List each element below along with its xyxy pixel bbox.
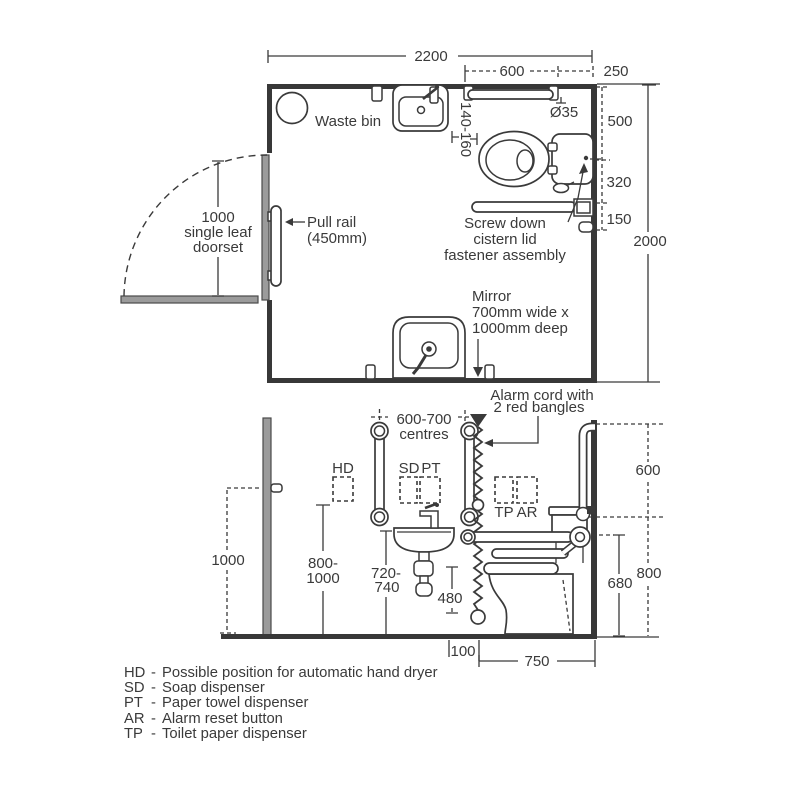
ar-label: AR — [517, 504, 538, 521]
rail-diameter-label: Ø35 — [550, 104, 578, 121]
drop-down-rail-plan — [472, 199, 593, 216]
legend-separator: - — [151, 681, 162, 696]
pull-rail-plan — [271, 206, 281, 286]
elev-dim-600-right: 600 — [589, 424, 664, 517]
plan-dim-500-label: 500 — [607, 113, 632, 130]
elev-dim-100-label: 100 — [450, 643, 475, 660]
elevation-door-edge — [263, 418, 271, 636]
red-bangle-lower — [471, 610, 485, 624]
alarm-cord-note: Alarm cord with 2 red bangles — [484, 387, 594, 447]
tp-label: TP — [494, 504, 513, 521]
screw-down-line2: cistern lid — [473, 231, 536, 248]
legend-abbr: AR — [124, 712, 151, 727]
elev-dim-800-label: 800 — [636, 565, 661, 582]
wall-bracket-plan — [372, 86, 382, 101]
alarm-note-line2: 2 red bangles — [494, 399, 585, 416]
pull-rail-line2: (450mm) — [307, 230, 367, 247]
legend-abbr: HD — [124, 666, 151, 681]
elev-dim-680-label: 680 — [607, 575, 632, 592]
mirror-line3: 1000mm deep — [472, 320, 568, 337]
mirror-note: Mirror 700mm wide x 1000mm deep — [472, 288, 569, 377]
hand-dryer-position: HD — [332, 460, 354, 501]
basin-elevation — [394, 503, 454, 596]
waste-bin-label: Waste bin — [315, 113, 381, 130]
toilet-plan — [479, 132, 593, 193]
top-basin-plan — [393, 85, 448, 131]
legend-separator: - — [151, 696, 162, 711]
elev-dim-1000: 1000 — [211, 488, 261, 633]
legend-separator: - — [151, 666, 162, 681]
screw-down-line1: Screw down — [464, 215, 546, 232]
legend-separator: - — [151, 727, 162, 742]
legend-desc: Soap dispenser — [162, 681, 265, 696]
hd-label: HD — [332, 460, 354, 477]
cord-anchor-plan — [579, 222, 593, 232]
sd-label: SD — [399, 460, 420, 477]
elev-dim-680: 680 — [592, 535, 633, 636]
centres-note: 600-700 centres — [396, 411, 451, 443]
elev-dim-800-1000: 800- 1000 — [306, 505, 339, 634]
elev-dim-1000-label: 1000 — [211, 552, 244, 569]
red-bangle-upper — [473, 500, 484, 511]
legend-row-pt: PT-Paper towel dispenser — [124, 696, 438, 711]
drop-rail-support — [492, 549, 568, 558]
legend-separator: - — [151, 712, 162, 727]
elev-dim-480: 480 — [437, 567, 462, 613]
elev-dim-480-label: 480 — [437, 590, 462, 607]
door-handle — [271, 484, 282, 492]
plan-dim-rail: 600 250 — [465, 63, 629, 86]
elev-dim-750: 750 — [479, 640, 595, 670]
plan-dim-depth-label: 2000 — [633, 233, 666, 250]
plan-dim-150-label: 150 — [606, 211, 631, 228]
legend-desc: Paper towel dispenser — [162, 696, 308, 711]
door-assembly-plan: 1000 single leaf doorset — [121, 155, 281, 303]
elev-dim-720-label2: 740 — [374, 579, 399, 596]
legend-desc: Possible position for automatic hand dry… — [162, 666, 438, 681]
door-leaf-open — [121, 296, 258, 303]
elev-dim-600-label: 600 — [635, 462, 660, 479]
pull-rail-note: Pull rail (450mm) — [285, 214, 367, 247]
elev-dim-800-1000-label2: 1000 — [306, 570, 339, 587]
plan-dim-320-label: 320 — [606, 174, 631, 191]
elev-dim-750-label: 750 — [524, 653, 549, 670]
doorset-line3: doorset — [193, 239, 244, 256]
waste-bin-plan: Waste bin — [277, 93, 382, 131]
elevation-right-wall — [591, 420, 597, 634]
centres-line2: centres — [399, 426, 448, 443]
elev-dim-100: 100 — [449, 640, 479, 661]
elev-dim-800-right: 800 — [636, 517, 661, 636]
doc-m-toilet-drawing: 2200 600 250 500 320 150 2000 Waste bin — [0, 0, 800, 800]
screw-down-line3: fastener assembly — [444, 247, 566, 264]
legend-row-ar: AR-Alarm reset button — [124, 712, 438, 727]
legend-abbr: SD — [124, 681, 151, 696]
pull-rail-line1: Pull rail — [307, 214, 356, 231]
pt-label: PT — [421, 460, 440, 477]
plan-dim-rail-label: 600 — [499, 63, 524, 80]
mirror-line1: Mirror — [472, 288, 511, 305]
toiletpaper-alarmreset-positions: TP AR — [494, 477, 537, 521]
plan-dim-gap-label: 140-160 — [457, 102, 474, 157]
plan-dim-width: 2200 — [268, 48, 592, 65]
legend-abbr: PT — [124, 696, 151, 711]
legend-row-sd: SD-Soap dispenser — [124, 681, 438, 696]
elev-dim-720-740: 720- 740 — [371, 531, 401, 634]
mirror-line2: 700mm wide x — [472, 304, 569, 321]
plan-dim-width-label: 2200 — [414, 48, 447, 65]
top-grab-rail-plan: Ø35 — [464, 86, 578, 121]
drop-down-rail-elevation — [461, 532, 573, 542]
legend: HD-Possible position for automatic hand … — [124, 666, 438, 742]
plan-dim-corner-label: 250 — [603, 63, 628, 80]
legend-desc: Alarm reset button — [162, 712, 283, 727]
soap-papertowel-positions: SD PT — [399, 460, 441, 503]
legend-abbr: TP — [124, 727, 151, 742]
legend-desc: Toilet paper dispenser — [162, 727, 307, 742]
legend-row-tp: TP-Toilet paper dispenser — [124, 727, 438, 742]
toilet-elevation — [461, 427, 595, 634]
plan-dim-gap: 140-160 — [452, 102, 477, 157]
legend-row-hd: HD-Possible position for automatic hand … — [124, 666, 438, 681]
